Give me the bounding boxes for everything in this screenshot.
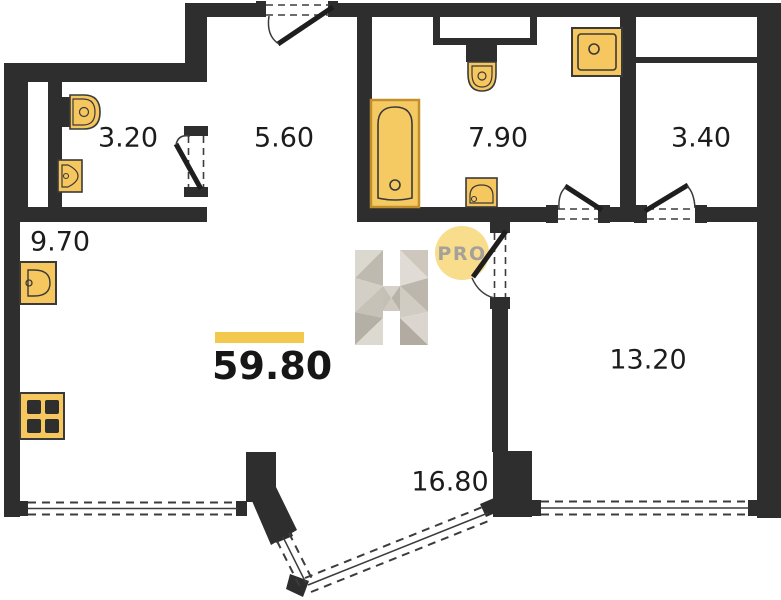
door-wc (176, 136, 204, 189)
bathtub-icon (371, 100, 419, 207)
door-entrance (266, 5, 333, 44)
door-bathroom (558, 186, 602, 219)
floor-plan-drawing: PRO (0, 0, 781, 600)
window-bay-long (305, 506, 491, 592)
sink-icon (466, 178, 497, 207)
room-area-label-bathroom: 7.90 (468, 123, 528, 154)
sink-icon (58, 160, 82, 192)
toilet-icon (54, 95, 100, 129)
watermark-h-icon (355, 250, 428, 345)
pro-badge: PRO (435, 226, 489, 280)
stove-icon (20, 393, 64, 439)
toilet-icon (466, 44, 497, 91)
total-area-accent-bar (215, 332, 304, 343)
shower-tray-icon (572, 28, 622, 76)
windows (28, 502, 749, 593)
floor-plan: PRO (0, 0, 781, 600)
room-area-label-living: 16.80 (411, 467, 488, 498)
room-area-label-bedroom: 13.20 (609, 345, 686, 376)
pro-badge-label: PRO (437, 243, 486, 265)
total-area-value: 59.80 (212, 347, 332, 385)
window-bottom-left (28, 503, 238, 515)
room-area-label-kitchen: 9.70 (30, 227, 90, 258)
kitchen-sink-icon (20, 262, 56, 304)
room-area-label-wc: 3.20 (98, 123, 158, 154)
door-storage (645, 185, 695, 219)
room-area-label-storage: 3.40 (671, 123, 731, 154)
total-area: 59.80 (212, 332, 332, 385)
window-bottom-right (541, 502, 749, 515)
room-area-label-hallway: 5.60 (254, 123, 314, 154)
